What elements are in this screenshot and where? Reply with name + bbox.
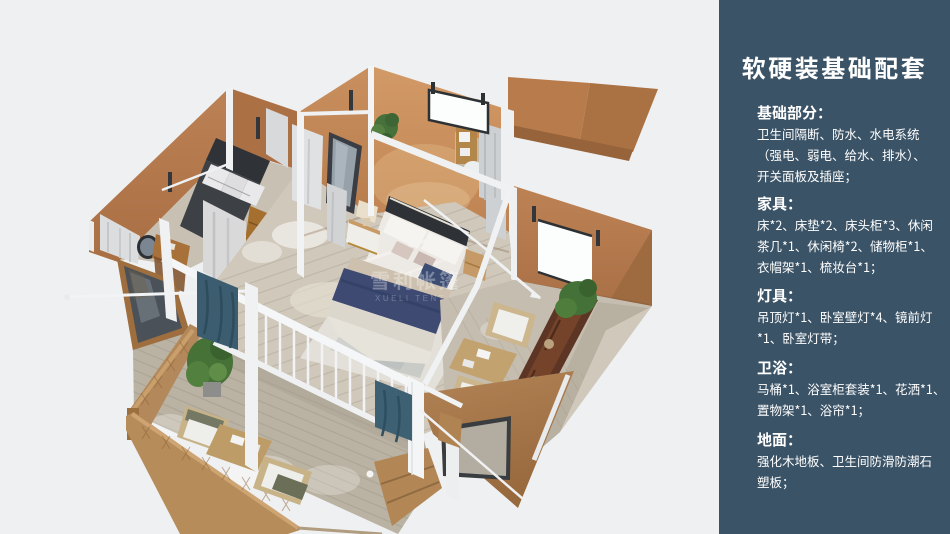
svg-text:XUELI TENT: XUELI TENT [375,294,446,303]
svg-text:雪利帐篷: 雪利帐篷 [370,265,462,294]
